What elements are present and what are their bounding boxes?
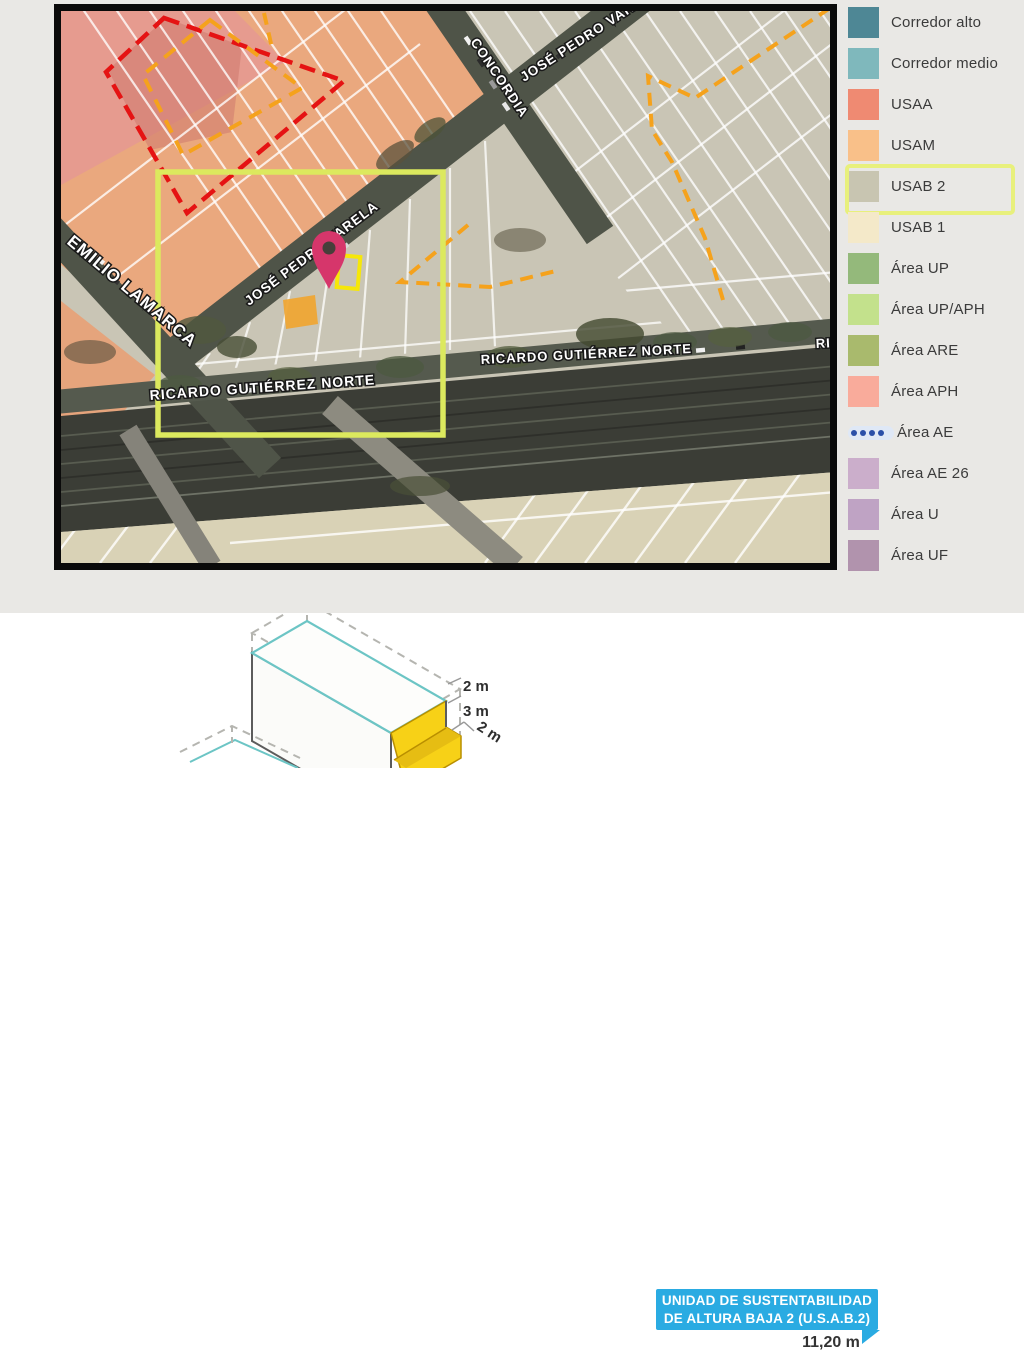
legend-item-area-up: Área UP (848, 253, 1020, 284)
color-swatch (848, 376, 879, 407)
usab2-height-diagram: 2 m 3 m 2 m (0, 613, 1024, 768)
dimension-label-3m: 3 m (463, 703, 489, 720)
legend-item-area-are: Área ARE (848, 335, 1020, 366)
legend-item-area-uf: Área UF (848, 540, 1020, 571)
color-swatch (848, 458, 879, 489)
zoning-legend: Corredor alto Corredor medio USAA USAM U… (848, 7, 1020, 571)
total-height-value: 11,20 m (771, 1334, 891, 1352)
color-swatch (848, 253, 879, 284)
legend-label: Área AE (897, 424, 953, 441)
legend-label: Área ARE (891, 342, 958, 359)
color-swatch (848, 171, 879, 202)
satellite-map[interactable]: EMILIO LAMARCA CONCORDIA JOSÉ PEDRO VARE… (54, 4, 837, 570)
legend-label: Corredor alto (891, 14, 981, 31)
legend-label: Área UP (891, 260, 949, 277)
color-swatch (848, 48, 879, 79)
legend-item-area-up-aph: Área UP/APH (848, 294, 1020, 325)
height-diagram-section: 2 m 3 m 2 m UNIDAD DE SUSTENTABILIDAD DE… (0, 613, 1024, 768)
legend-label: Área UF (891, 547, 948, 564)
callout-line1: UNIDAD DE SUSTENTABILIDAD (662, 1292, 872, 1310)
legend-label: USAB 1 (891, 219, 946, 236)
legend-label: Área U (891, 506, 939, 523)
color-swatch (848, 89, 879, 120)
legend-item-area-ae: Área AE (848, 417, 1020, 448)
legend-label: Corredor medio (891, 55, 998, 72)
legend-label: USAA (891, 96, 933, 113)
color-swatch (848, 294, 879, 325)
legend-label: USAB 2 (891, 178, 946, 195)
dotted-line-swatch (848, 426, 894, 440)
callout-line2: DE ALTURA BAJA 2 (U.S.A.B.2) (664, 1310, 870, 1328)
color-swatch (848, 212, 879, 243)
legend-item-area-aph: Área APH (848, 376, 1020, 407)
legend-label: Área APH (891, 383, 958, 400)
map-panel-background: EMILIO LAMARCA CONCORDIA JOSÉ PEDRO VARE… (0, 0, 1024, 613)
legend-item-corredor-medio: Corredor medio (848, 48, 1020, 79)
legend-label: Área UP/APH (891, 301, 985, 318)
legend-item-area-ae26: Área AE 26 (848, 458, 1020, 489)
legend-item-usam: USAM (848, 130, 1020, 161)
dimension-label-2m-bottom: 2 m (474, 718, 505, 746)
legend-item-usaa: USAA (848, 89, 1020, 120)
dimension-label-2m-top: 2 m (463, 678, 489, 695)
legend-item-usab1: USAB 1 (848, 212, 1020, 243)
legend-item-usab2-highlighted: USAB 2 (848, 171, 1020, 202)
legend-label: USAM (891, 137, 935, 154)
legend-item-area-u: Área U (848, 499, 1020, 530)
color-swatch (848, 540, 879, 571)
building-volume (252, 621, 461, 768)
legend-label: Área AE 26 (891, 465, 969, 482)
color-swatch (848, 130, 879, 161)
usab2-callout: UNIDAD DE SUSTENTABILIDAD DE ALTURA BAJA… (656, 1289, 878, 1330)
color-swatch (848, 499, 879, 530)
color-swatch (848, 7, 879, 38)
highlight-parcel (283, 295, 318, 329)
color-swatch (848, 335, 879, 366)
legend-item-corredor-alto: Corredor alto (848, 7, 1020, 38)
